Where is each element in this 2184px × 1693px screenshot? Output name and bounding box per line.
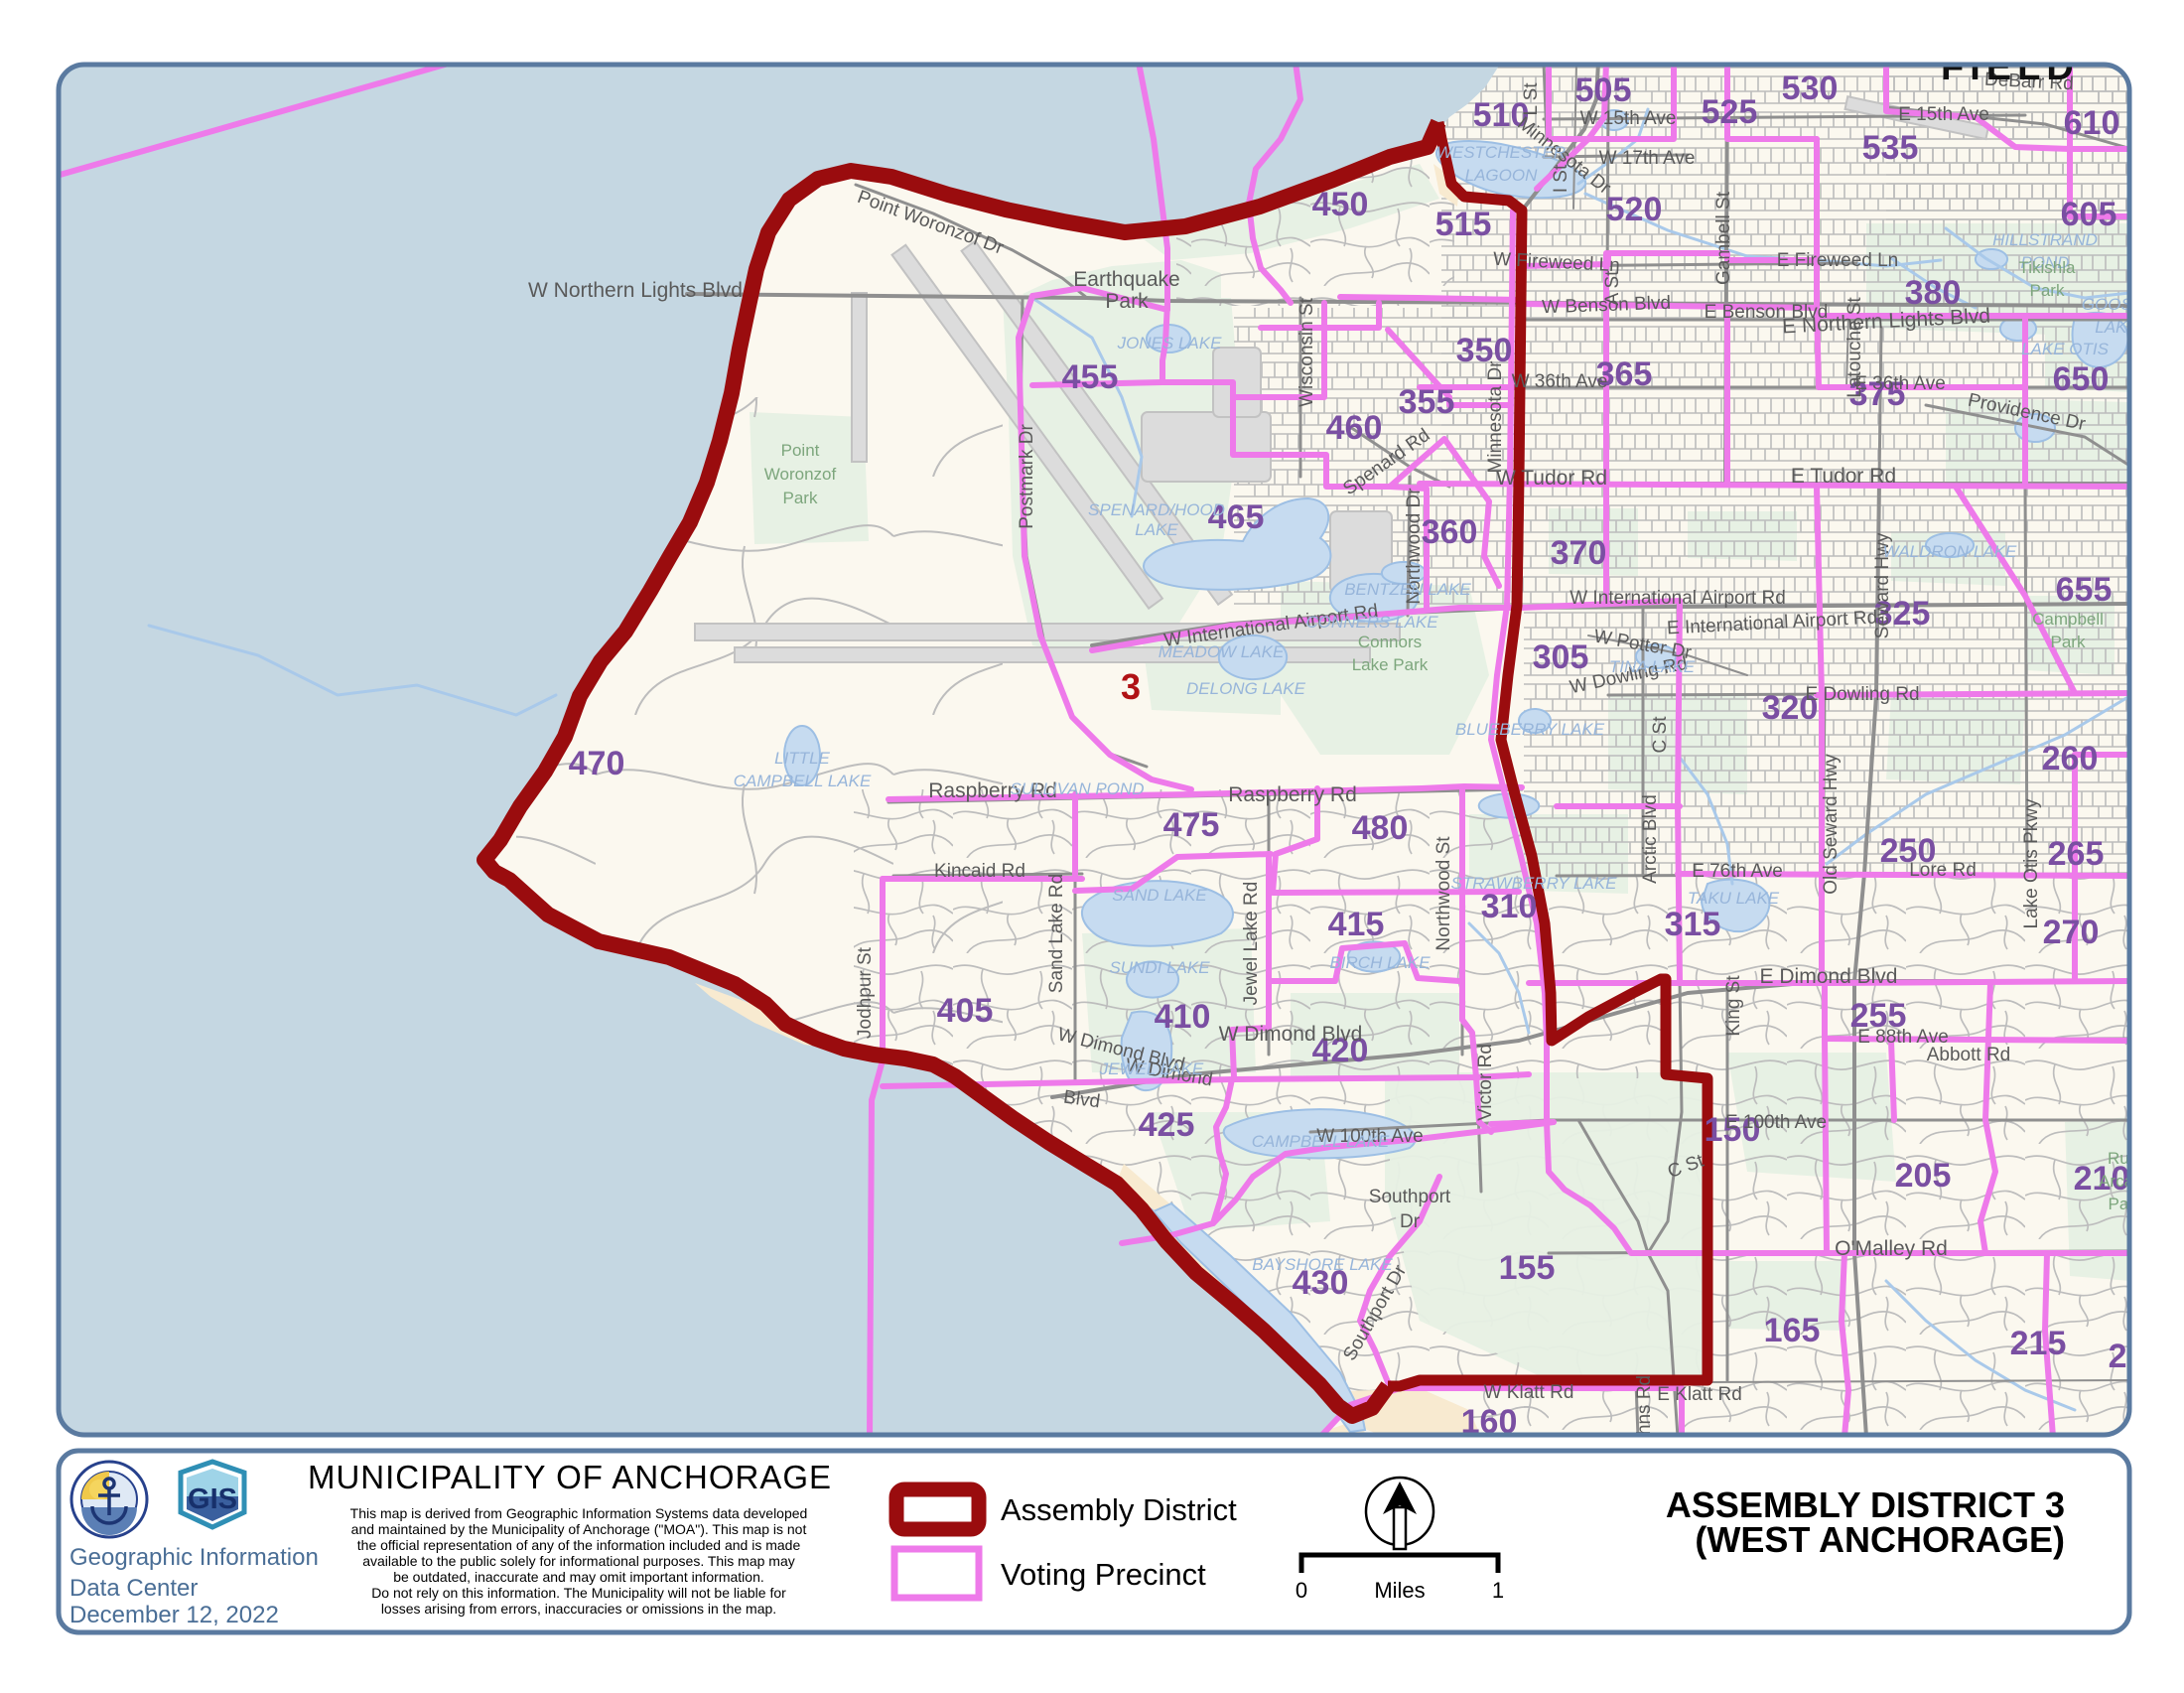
svg-text:Geographic Information: Geographic Information [69, 1544, 319, 1571]
svg-text:W International Airport Rd: W International Airport Rd [1570, 588, 1786, 609]
svg-text:losses arising from errors, in: losses arising from errors, inaccuracies… [381, 1601, 776, 1617]
svg-text:Voting Precinct: Voting Precinct [1001, 1557, 1206, 1592]
svg-text:Miles: Miles [1374, 1578, 1425, 1603]
svg-text:260: 260 [2042, 740, 2099, 777]
svg-text:450: 450 [1312, 186, 1369, 223]
svg-text:W 15th Ave: W 15th Ave [1580, 108, 1677, 129]
svg-text:SAND LAKE: SAND LAKE [1112, 886, 1207, 905]
svg-text:405: 405 [937, 992, 994, 1030]
svg-text:Raspberry Rd: Raspberry Rd [1228, 783, 1357, 806]
svg-text:be outdated, inaccurate and ma: be outdated, inaccurate and may omit imp… [393, 1569, 764, 1585]
svg-text:475: 475 [1163, 806, 1220, 844]
svg-text:SUNDI LAKE: SUNDI LAKE [1109, 958, 1210, 977]
svg-text:Gambell St: Gambell St [1713, 191, 1734, 285]
svg-text:Park: Park [783, 489, 818, 507]
svg-text:Kincaid Rd: Kincaid Rd [934, 861, 1025, 882]
svg-text:MUNICIPALITY OF ANCHORAGE: MUNICIPALITY OF ANCHORAGE [308, 1459, 832, 1495]
svg-text:215: 215 [2010, 1325, 2067, 1362]
svg-text:270: 270 [2043, 914, 2100, 951]
svg-text:WALDRON LAKE: WALDRON LAKE [1883, 542, 2017, 561]
svg-text:available to the public solely: available to the public solely for infor… [362, 1553, 795, 1569]
svg-text:E 100th Ave: E 100th Ave [1725, 1112, 1827, 1133]
svg-text:LITTLE: LITTLE [774, 749, 830, 768]
svg-text:King St: King St [1723, 975, 1744, 1037]
svg-text:370: 370 [1551, 534, 1607, 572]
svg-text:E Klatt Rd: E Klatt Rd [1657, 1384, 1742, 1405]
svg-text:CAMPBELL LAKE: CAMPBELL LAKE [734, 772, 872, 790]
svg-text:CAMPBELL LAKE: CAMPBELL LAKE [1252, 1132, 1390, 1151]
svg-text:Woronzof: Woronzof [764, 465, 837, 484]
svg-text:655: 655 [2056, 571, 2113, 609]
svg-text:CONNERS LAKE: CONNERS LAKE [1305, 613, 1438, 632]
svg-text:520: 520 [1606, 191, 1663, 228]
svg-text:310: 310 [1481, 888, 1538, 925]
svg-text:0: 0 [1296, 1578, 1307, 1603]
svg-text:415: 415 [1328, 906, 1385, 943]
svg-text:and maintained by the Municipa: and maintained by the Municipality of An… [351, 1521, 807, 1537]
svg-text:Do not rely on this informatio: Do not rely on this information. The Mun… [371, 1585, 786, 1601]
svg-text:Lake Otis Pkwy: Lake Otis Pkwy [2021, 798, 2042, 928]
svg-text:360: 360 [1422, 513, 1478, 551]
svg-text:December 12, 2022: December 12, 2022 [69, 1602, 279, 1628]
svg-text:I St: I St [1551, 164, 1571, 193]
svg-text:JEWEL LAKE: JEWEL LAKE [1099, 1059, 1204, 1078]
svg-text:O'Malley Rd: O'Malley Rd [1835, 1237, 1948, 1260]
svg-text:GIS: GIS [188, 1483, 237, 1515]
svg-text:Victor Rd: Victor Rd [1475, 1044, 1496, 1121]
svg-text:Connors: Connors [1358, 633, 1422, 651]
svg-text:DELONG LAKE: DELONG LAKE [1186, 679, 1306, 698]
svg-text:Latouche St: Latouche St [1844, 297, 1865, 398]
svg-text:Data Center: Data Center [69, 1575, 198, 1602]
svg-text:E Fireweed Ln: E Fireweed Ln [1777, 250, 1899, 271]
svg-text:355: 355 [1399, 383, 1455, 421]
svg-text:SPENARD/HOOD: SPENARD/HOOD [1088, 500, 1225, 519]
svg-text:STRAWBERRY LAKE: STRAWBERRY LAKE [1451, 874, 1618, 893]
svg-text:610: 610 [2064, 104, 2120, 142]
svg-text:Campbell: Campbell [2032, 610, 2104, 629]
svg-text:TINA LAKE: TINA LAKE [1609, 657, 1696, 676]
svg-text:Sand Lake Rd: Sand Lake Rd [1046, 874, 1067, 993]
svg-text:BAYSHORE LAKE: BAYSHORE LAKE [1252, 1255, 1393, 1274]
svg-text:Jewel Lake Rd: Jewel Lake Rd [1241, 882, 1262, 1006]
svg-text:205: 205 [1895, 1157, 1952, 1195]
svg-text:W 36th Ave: W 36th Ave [1512, 371, 1608, 392]
svg-text:W Tudor Rd: W Tudor Rd [1496, 467, 1607, 490]
svg-text:410: 410 [1155, 998, 1211, 1036]
svg-text:Tikishla: Tikishla [2019, 258, 2077, 277]
svg-text:A St: A St [1602, 270, 1623, 306]
svg-text:505: 505 [1575, 71, 1632, 109]
svg-text:Arctic Blvd: Arctic Blvd [1640, 794, 1661, 884]
svg-text:460: 460 [1326, 409, 1383, 447]
svg-text:Earthquake: Earthquake [1073, 268, 1179, 291]
svg-text:HILLSTRAND: HILLSTRAND [1992, 230, 2098, 249]
svg-text:L St: L St [1521, 82, 1542, 116]
svg-text:MEADOW LAKE: MEADOW LAKE [1159, 642, 1285, 661]
svg-text:LAKE OTIS: LAKE OTIS [2021, 340, 2110, 358]
svg-text:Lake Park: Lake Park [1352, 655, 1429, 674]
svg-text:E Dimond Blvd: E Dimond Blvd [1760, 965, 1898, 988]
svg-text:Southport: Southport [1369, 1187, 1451, 1207]
svg-text:BIRCH LAKE: BIRCH LAKE [1329, 953, 1431, 972]
svg-text:Assembly District: Assembly District [1001, 1492, 1237, 1527]
svg-text:Park: Park [2030, 281, 2065, 300]
svg-text:Park: Park [2051, 633, 2086, 651]
svg-text:W Dimond Blvd: W Dimond Blvd [1219, 1023, 1363, 1046]
svg-text:E 15th Ave: E 15th Ave [1898, 104, 1989, 125]
svg-text:E Tudor Rd: E Tudor Rd [1791, 465, 1896, 488]
svg-text:425: 425 [1139, 1106, 1195, 1144]
svg-text:515: 515 [1435, 206, 1492, 243]
svg-text:SULLIVAN POND: SULLIVAN POND [1010, 779, 1144, 798]
svg-text:(WEST ANCHORAGE): (WEST ANCHORAGE) [1695, 1519, 2065, 1560]
svg-text:BLUEBERRY LAKE: BLUEBERRY LAKE [1455, 720, 1605, 739]
svg-text:Park: Park [1105, 290, 1149, 313]
svg-text:525: 525 [1702, 93, 1758, 131]
svg-text:Minnesota Dr: Minnesota Dr [1485, 360, 1506, 474]
svg-text:Point: Point [781, 441, 820, 460]
svg-text:305: 305 [1533, 638, 1589, 676]
svg-text:480: 480 [1352, 809, 1409, 847]
svg-text:Lore Rd: Lore Rd [1909, 860, 1977, 881]
svg-text:Dr: Dr [1400, 1211, 1421, 1232]
svg-text:455: 455 [1062, 358, 1119, 396]
svg-text:535: 535 [1862, 129, 1919, 167]
svg-text:315: 315 [1665, 906, 1721, 943]
svg-text:C St: C St [1650, 716, 1671, 754]
svg-text:Postmark Dr: Postmark Dr [1017, 424, 1037, 529]
svg-text:3: 3 [1121, 666, 1141, 707]
svg-text:LAKE: LAKE [1135, 520, 1178, 539]
svg-text:TAKU LAKE: TAKU LAKE [1688, 889, 1780, 908]
svg-text:W Klatt Rd: W Klatt Rd [1484, 1382, 1574, 1403]
svg-text:Wisconsin St: Wisconsin St [1297, 297, 1317, 407]
svg-text:1: 1 [1492, 1578, 1504, 1603]
svg-text:the official representation of: the official representation of any of th… [357, 1537, 801, 1553]
svg-text:BENTZEN LAKE: BENTZEN LAKE [1344, 580, 1471, 599]
svg-text:155: 155 [1499, 1249, 1556, 1287]
svg-text:E Dowling Rd: E Dowling Rd [1805, 684, 1919, 705]
svg-text:Jodhpur St: Jodhpur St [855, 946, 876, 1039]
svg-text:265: 265 [2048, 835, 2105, 873]
svg-text:W 17th Ave: W 17th Ave [1599, 148, 1696, 169]
svg-text:Abbott Rd: Abbott Rd [1927, 1045, 2011, 1065]
svg-text:E 36th Ave: E 36th Ave [1854, 373, 1946, 394]
svg-text:470: 470 [569, 745, 625, 782]
svg-text:WESTCHESTER: WESTCHESTER [1436, 143, 1566, 162]
svg-text:Old Seward Hwy: Old Seward Hwy [1821, 754, 1842, 895]
svg-text:530: 530 [1782, 70, 1839, 107]
svg-text:165: 165 [1764, 1312, 1821, 1349]
svg-text:This map is derived from Geogr: This map is derived from Geographic Info… [350, 1505, 808, 1521]
svg-text:E 76th Ave: E 76th Ave [1692, 861, 1783, 882]
svg-text:LAGOON: LAGOON [1465, 166, 1538, 185]
svg-text:605: 605 [2061, 196, 2117, 233]
svg-text:JONES LAKE: JONES LAKE [1117, 334, 1223, 353]
svg-text:650: 650 [2053, 360, 2110, 398]
svg-text:W Northern Lights Blvd: W Northern Lights Blvd [528, 279, 743, 302]
svg-text:Northwood St: Northwood St [1433, 836, 1454, 951]
